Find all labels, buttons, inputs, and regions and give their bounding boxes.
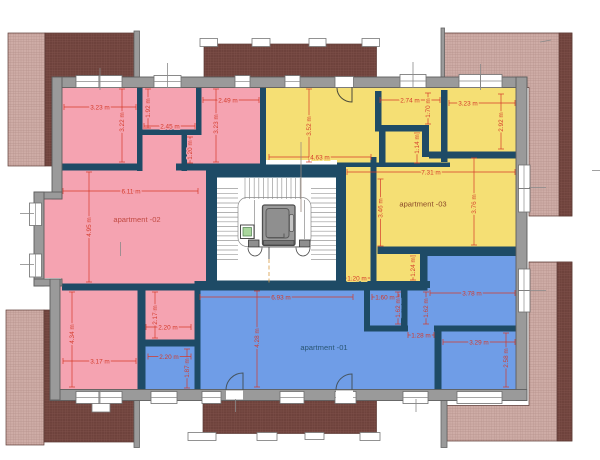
svg-text:3.52 m: 3.52 m (306, 116, 313, 136)
svg-text:2.74 m: 2.74 m (400, 97, 420, 104)
svg-text:3.76 m: 3.76 m (471, 194, 478, 214)
svg-text:1.28 m: 1.28 m (411, 332, 431, 339)
svg-text:apartment -02: apartment -02 (113, 215, 160, 224)
svg-text:apartment -01: apartment -01 (300, 343, 347, 352)
svg-text:1.60 m: 1.60 m (375, 294, 395, 301)
svg-text:3.78 m: 3.78 m (462, 290, 482, 297)
svg-text:3.17 m: 3.17 m (90, 358, 110, 365)
svg-text:6.93 m: 6.93 m (271, 294, 291, 301)
svg-text:2.49 m: 2.49 m (218, 97, 238, 104)
svg-text:apartment -03: apartment -03 (399, 200, 446, 209)
svg-text:1.24 m: 1.24 m (410, 257, 417, 277)
svg-text:1.20 m: 1.20 m (187, 140, 194, 160)
svg-text:2.20 m: 2.20 m (158, 324, 178, 331)
svg-text:4.95 m: 4.95 m (86, 217, 93, 237)
svg-text:3.22 m: 3.22 m (119, 112, 126, 132)
svg-text:2.20 m: 2.20 m (159, 354, 179, 361)
svg-text:3.29 m: 3.29 m (469, 339, 489, 346)
svg-text:1.62 m: 1.62 m (423, 298, 430, 318)
svg-text:3.23 m: 3.23 m (213, 114, 220, 134)
svg-text:4.63 m: 4.63 m (310, 154, 330, 161)
svg-text:1.20 m: 1.20 m (347, 275, 367, 282)
svg-text:2.45 m: 2.45 m (160, 123, 180, 130)
svg-text:1.92 m: 1.92 m (145, 98, 152, 118)
svg-text:7.31 m: 7.31 m (421, 169, 441, 176)
svg-text:1.87 m: 1.87 m (184, 358, 191, 378)
svg-text:2.92 m: 2.92 m (498, 112, 505, 132)
svg-text:4.28 m: 4.28 m (254, 328, 261, 348)
svg-text:3.46 m: 3.46 m (378, 198, 385, 218)
svg-text:1.62 m: 1.62 m (395, 298, 402, 318)
svg-text:1.70 m: 1.70 m (425, 98, 432, 118)
svg-text:6.11 m: 6.11 m (121, 188, 140, 195)
svg-text:2.58 m: 2.58 m (503, 348, 510, 368)
svg-text:2.17 m: 2.17 m (152, 305, 159, 325)
svg-text:3.23 m: 3.23 m (458, 100, 478, 107)
svg-text:1.14 m: 1.14 m (414, 134, 421, 154)
svg-text:4.34 m: 4.34 m (69, 324, 76, 344)
svg-text:3.23 m: 3.23 m (90, 104, 110, 111)
